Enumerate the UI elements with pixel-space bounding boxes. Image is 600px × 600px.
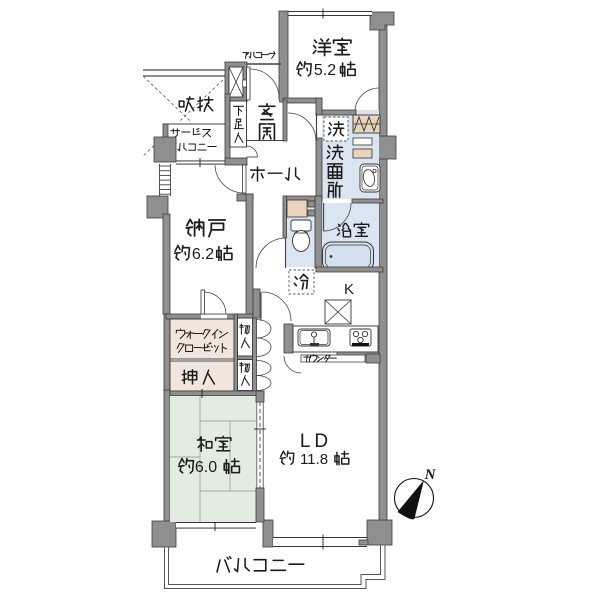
- svg-text:6.0: 6.0: [195, 459, 217, 476]
- svg-text:6.2: 6.2: [192, 246, 214, 263]
- svg-text:K: K: [344, 281, 354, 298]
- svg-text:LD: LD: [300, 431, 332, 452]
- svg-text:N: N: [424, 467, 437, 483]
- svg-text:11.8: 11.8: [300, 451, 328, 468]
- svg-text:5.2: 5.2: [314, 62, 336, 79]
